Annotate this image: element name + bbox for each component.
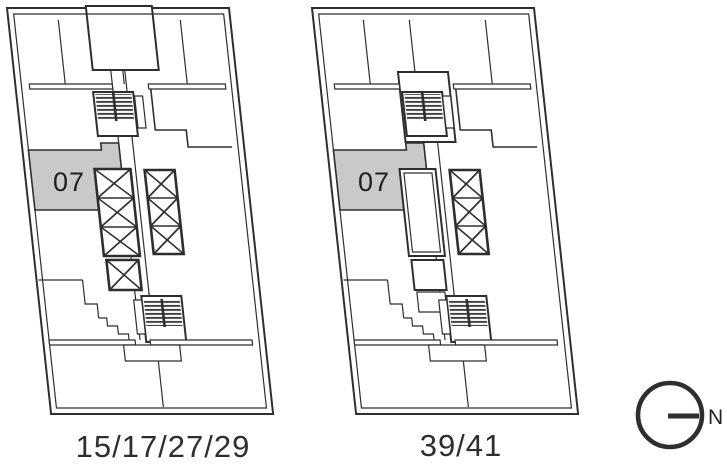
- top-core-block: [86, 6, 159, 70]
- north-compass: N: [638, 383, 723, 447]
- elevator-cell-lower-empty: [411, 260, 446, 290]
- bottom-unit-partition: [158, 361, 163, 407]
- floors-label-right: 39/41: [420, 428, 503, 463]
- key-plan-drawing: 07 15/17/27/29: [0, 0, 727, 466]
- right-unit-partition: [456, 89, 537, 147]
- vestibule: [124, 345, 182, 361]
- right-unit-partition: [151, 89, 232, 147]
- key-plan-canvas: 07 15/17/27/29: [0, 0, 727, 466]
- corridor-wall-left: [334, 84, 400, 89]
- floor-plan-left: [7, 6, 273, 414]
- vestibule: [429, 345, 487, 361]
- bottom-corridor-wall-left: [49, 340, 136, 345]
- unit-label-left: 07: [53, 167, 85, 197]
- unit-label-right: 07: [358, 167, 390, 197]
- bottom-corridor-wall-right: [455, 340, 558, 345]
- floor-plan-right: [312, 8, 578, 414]
- corridor-wall-left: [29, 84, 113, 89]
- elevator-bank-left-empty: [399, 169, 444, 256]
- bottom-corridor-wall-right: [150, 340, 253, 345]
- compass-north-label: N: [708, 406, 723, 429]
- corridor-wall-right: [453, 84, 531, 89]
- floors-label-left: 15/17/27/29: [76, 429, 251, 464]
- bottom-corridor-wall-left: [354, 340, 441, 345]
- corridor-wall-right: [148, 84, 226, 89]
- bottom-unit-partition: [463, 361, 468, 407]
